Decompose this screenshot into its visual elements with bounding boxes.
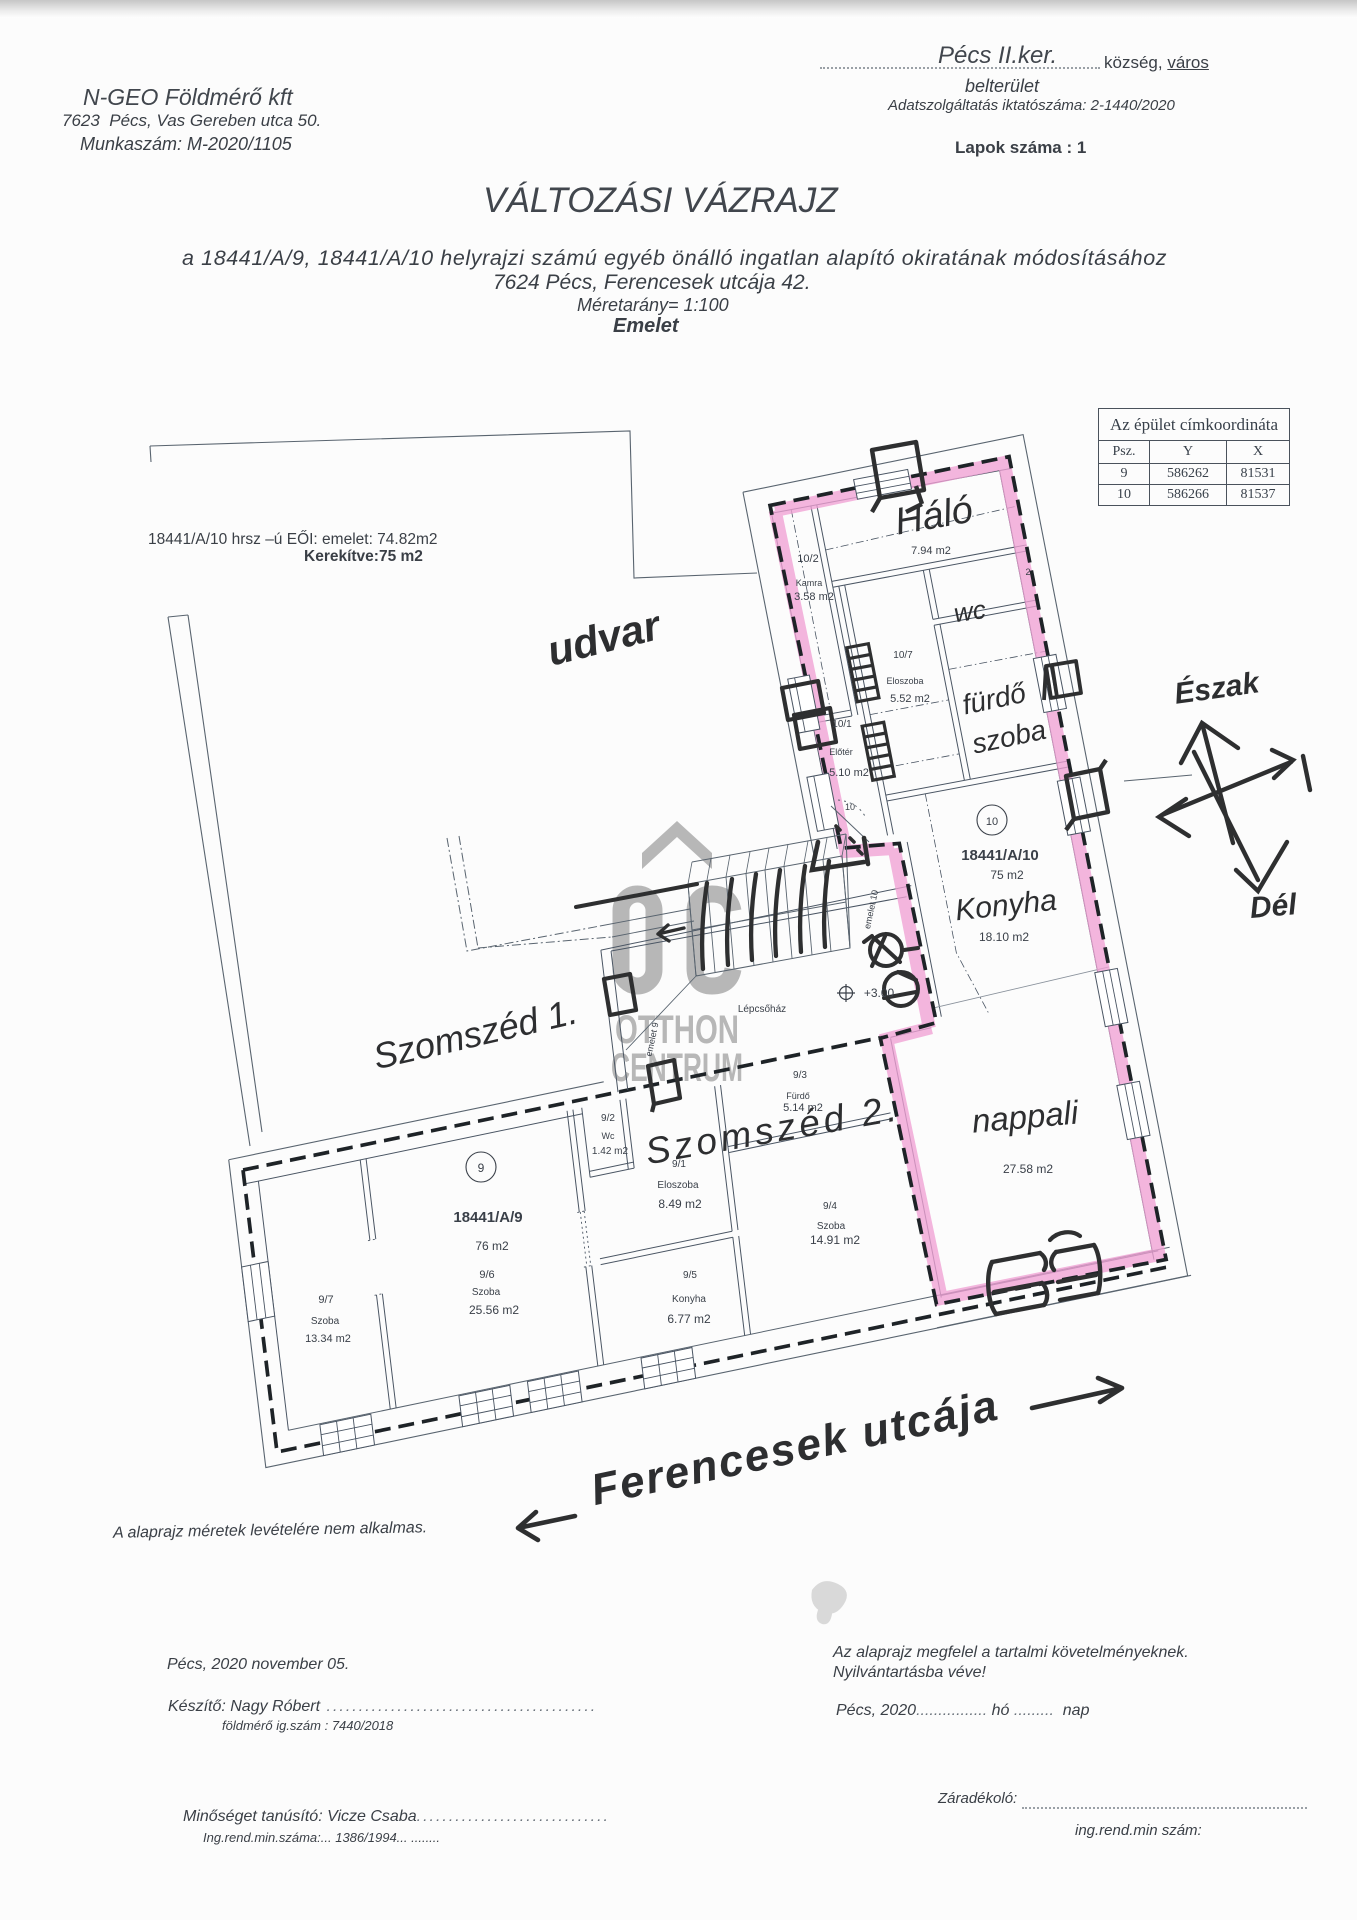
svg-text:18441/A/9: 18441/A/9 (453, 1209, 522, 1226)
svg-text:Konyha: Konyha (954, 884, 1059, 927)
svg-text:9/7: 9/7 (318, 1294, 333, 1306)
svg-text:fürdő: fürdő (960, 677, 1029, 721)
svg-text:10: 10 (845, 802, 855, 812)
svg-text:18.10 m2: 18.10 m2 (979, 930, 1029, 944)
svg-text:5.52 m2: 5.52 m2 (890, 693, 930, 705)
svg-text:Előtér: Előtér (829, 747, 853, 757)
svg-text:10/2: 10/2 (797, 553, 818, 565)
svg-text:Kamra: Kamra (796, 578, 823, 588)
svg-text:Szoba: Szoba (311, 1316, 340, 1327)
svg-text:27.58 m2: 27.58 m2 (1003, 1162, 1053, 1176)
svg-text:Eloszoba: Eloszoba (657, 1180, 699, 1191)
svg-text:udvar: udvar (542, 601, 667, 675)
svg-text:18441/A/10: 18441/A/10 (961, 847, 1039, 864)
svg-text:Szoba: Szoba (817, 1221, 846, 1232)
svg-text:Lépcsőház: Lépcsőház (738, 1004, 786, 1015)
svg-text:10/1: 10/1 (832, 719, 852, 730)
svg-text:75 m2: 75 m2 (990, 868, 1024, 882)
svg-text:6.77 m2: 6.77 m2 (667, 1312, 711, 1326)
svg-text:9: 9 (478, 1161, 485, 1175)
svg-text:Konyha: Konyha (672, 1294, 706, 1305)
svg-text:Fürdő: Fürdő (786, 1091, 810, 1101)
svg-text:3.58 m2: 3.58 m2 (794, 591, 834, 603)
svg-text:Háló: Háló (892, 489, 976, 544)
svg-text:Ferencesek utcája: Ferencesek utcája (587, 1381, 1004, 1515)
svg-text:Wc: Wc (602, 1131, 615, 1141)
svg-text:+3.00: +3.00 (864, 986, 895, 1000)
svg-text:9/3: 9/3 (793, 1070, 807, 1081)
svg-text:9/4: 9/4 (823, 1201, 837, 1212)
svg-text:Szoba: Szoba (472, 1287, 501, 1298)
svg-text:szoba: szoba (969, 714, 1049, 760)
svg-text:2: 2 (1025, 567, 1030, 577)
svg-text:Dél: Dél (1248, 888, 1298, 925)
svg-text:76 m2: 76 m2 (475, 1239, 509, 1253)
svg-text:Eloszoba: Eloszoba (886, 676, 923, 686)
svg-text:Szomszéd 1.: Szomszéd 1. (369, 990, 581, 1077)
svg-text:9/5: 9/5 (683, 1270, 697, 1281)
svg-text:7.94 m2: 7.94 m2 (911, 545, 951, 557)
svg-text:Észak: Észak (1172, 665, 1262, 711)
svg-text:nappali: nappali (970, 1093, 1081, 1139)
svg-text:10/7: 10/7 (893, 650, 913, 661)
svg-text:8.49 m2: 8.49 m2 (658, 1197, 702, 1211)
svg-text:1.42 m2: 1.42 m2 (592, 1146, 629, 1157)
svg-text:13.34 m2: 13.34 m2 (305, 1333, 351, 1345)
svg-text:5.10 m2: 5.10 m2 (829, 767, 869, 779)
svg-text:10: 10 (986, 816, 998, 828)
svg-text:25.56 m2: 25.56 m2 (469, 1303, 519, 1317)
svg-text:9/2: 9/2 (601, 1113, 615, 1124)
svg-text:wc: wc (952, 594, 988, 628)
svg-text:14.91 m2: 14.91 m2 (810, 1233, 860, 1247)
svg-text:Szomszéd 2.: Szomszéd 2. (642, 1087, 903, 1172)
svg-text:9/6: 9/6 (479, 1269, 494, 1281)
